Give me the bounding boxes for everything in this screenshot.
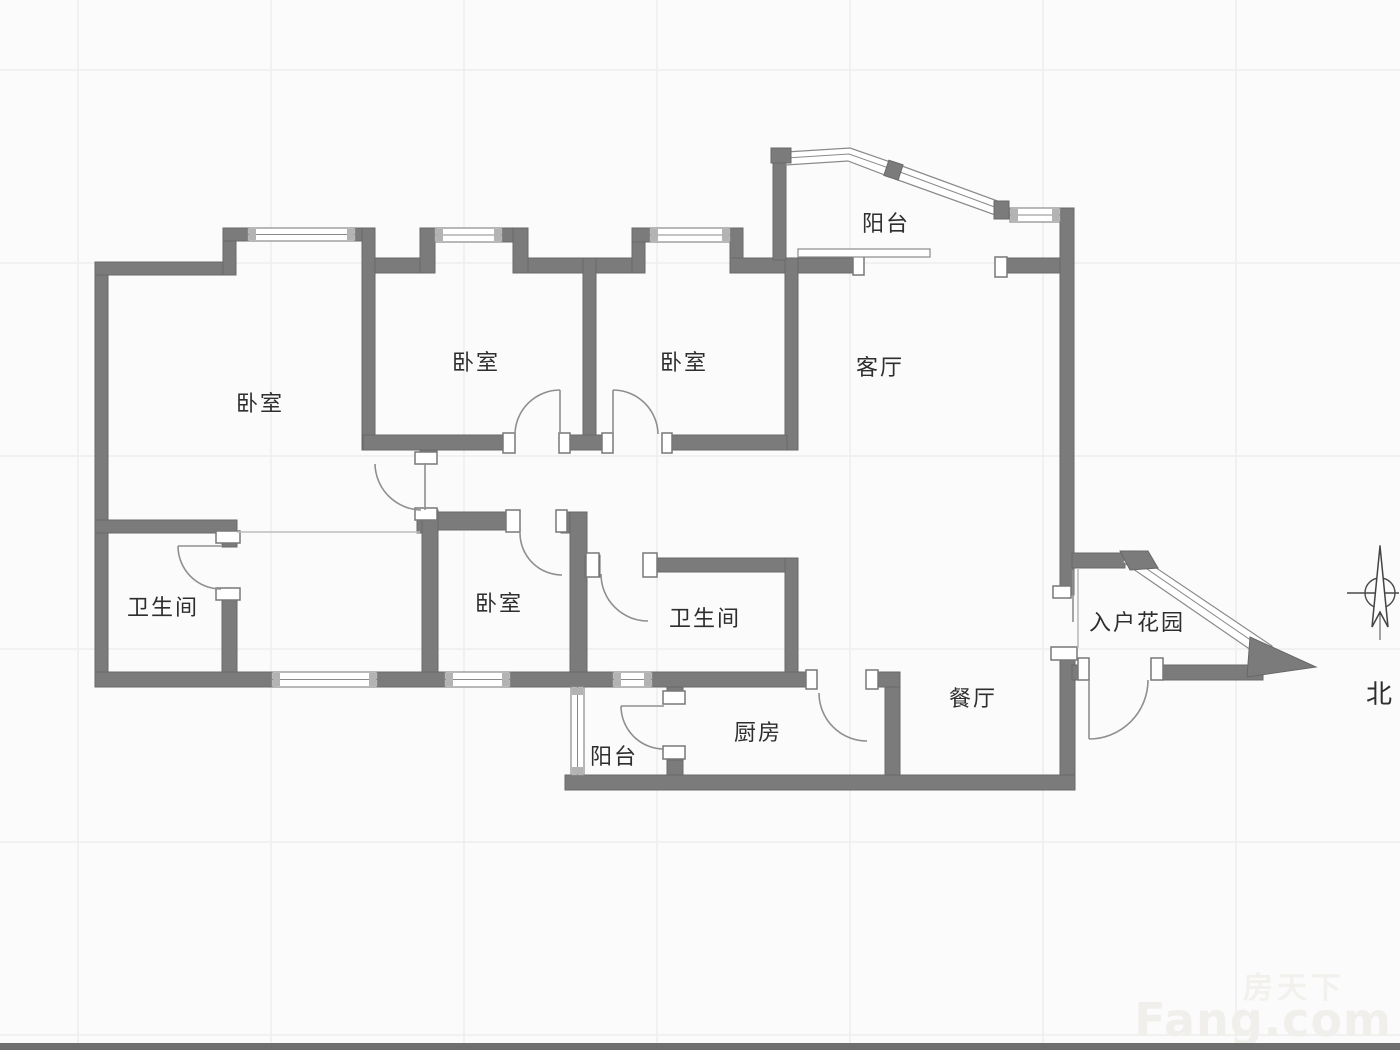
room-label-living-room: 客厅 [856, 356, 904, 381]
door-arc-bedroom-2 [515, 390, 560, 434]
door-jamb [866, 670, 878, 689]
wall-segment [667, 760, 683, 775]
wall-segment [652, 672, 810, 687]
door-jamb [586, 553, 599, 577]
door-jamb [806, 670, 817, 689]
wall-segment [785, 558, 798, 687]
room-label-bathroom-right: 卫生间 [669, 607, 741, 632]
wall-segment [885, 687, 900, 777]
wall-segment [1060, 208, 1074, 595]
wall-segment [420, 228, 435, 273]
window [445, 672, 510, 687]
door-jamb [663, 746, 685, 759]
wall-segment [438, 512, 508, 530]
door-jamb [663, 691, 685, 704]
compass [1347, 545, 1399, 640]
door-jamb [643, 553, 657, 577]
wall-segment [1072, 553, 1125, 568]
wall-segment [632, 228, 650, 242]
room-label-bedroom-4: 卧室 [475, 592, 523, 617]
door-arc-bedroom-master [375, 464, 421, 510]
door-jamb [602, 433, 613, 453]
door-jamb [1078, 658, 1089, 680]
watermark: 房天下 Fang.com [1134, 971, 1392, 1047]
wall-segment [422, 512, 438, 672]
wall-segment [785, 258, 798, 450]
wall-segment [363, 435, 503, 450]
wall-segment [223, 228, 248, 241]
wall-segment [570, 512, 587, 672]
door-arc-bathroom-left [178, 546, 221, 589]
wall-segment [565, 775, 1075, 790]
north-label: 北 [1366, 680, 1392, 710]
window [435, 228, 502, 242]
door-arc-kitchen [819, 693, 867, 741]
room-label-balcony-top: 阳台 [862, 212, 910, 237]
door-jamb [506, 510, 520, 532]
door-jamb [995, 257, 1007, 277]
wall-segment [362, 228, 375, 450]
wall-segment [656, 558, 787, 572]
wall-segment [1120, 551, 1158, 570]
door-arc-bedroom-4 [520, 533, 562, 575]
door-jamb [415, 452, 437, 464]
wall-segment [1007, 258, 1060, 273]
room-label-bedroom-3: 卧室 [660, 351, 708, 376]
wall-segment [773, 150, 786, 260]
room-label-bedroom-master: 卧室 [236, 392, 284, 417]
door-jamb [556, 510, 567, 532]
door-jamb [559, 433, 570, 453]
room-label-dining-room: 餐厅 [949, 687, 997, 712]
window [272, 672, 377, 687]
door-jamb [216, 588, 240, 600]
door-jamb [1051, 647, 1077, 660]
wall-segment [583, 258, 596, 450]
room-label-entry-garden: 入户花园 [1089, 611, 1185, 636]
wall-segment [95, 262, 235, 275]
wall-segment [377, 672, 445, 687]
bottom-edge-bar [0, 1043, 1400, 1050]
balcony-curved-window [771, 148, 1009, 219]
wall-segment [95, 672, 272, 687]
wall-segment [878, 672, 900, 687]
window [1010, 208, 1060, 222]
door-jamb [216, 531, 240, 543]
window [650, 228, 730, 242]
wall-segment [513, 228, 528, 273]
door-arc-entry-garden [1089, 680, 1148, 739]
door-arc-bedroom-3 [613, 390, 658, 434]
door-jamb [662, 433, 672, 453]
wall-segment [672, 435, 787, 450]
wall-segment [375, 258, 422, 273]
window [248, 228, 355, 241]
floor-plan-canvas: 卧室 卧室 卧室 卧室 卫生间 卫生间 客厅 餐厅 厨房 阳台 阳台 入户花园 … [0, 0, 1400, 1050]
room-label-bedroom-2: 卧室 [452, 351, 500, 376]
room-label-bathroom-left: 卫生间 [127, 596, 199, 621]
window [571, 687, 584, 775]
door-jamb [1151, 658, 1163, 680]
room-label-balcony-bottom: 阳台 [590, 745, 638, 770]
door-jamb [853, 256, 864, 275]
wall-segment [95, 262, 108, 687]
window [613, 672, 652, 687]
door-jamb [1053, 586, 1071, 598]
sliding-door-living-balcony [798, 249, 930, 257]
room-label-kitchen: 厨房 [734, 721, 782, 746]
wall-segment [510, 672, 613, 687]
floor-plan-page: 卧室 卧室 卧室 卧室 卫生间 卫生间 客厅 餐厅 厨房 阳台 阳台 入户花园 … [0, 0, 1400, 1050]
door-jamb [503, 433, 515, 453]
watermark-en-text: Fang.com [1134, 993, 1392, 1047]
wall-segment [222, 589, 237, 672]
wall-arrow-corner [1247, 637, 1316, 677]
door-arc-bathroom-right [601, 574, 648, 621]
